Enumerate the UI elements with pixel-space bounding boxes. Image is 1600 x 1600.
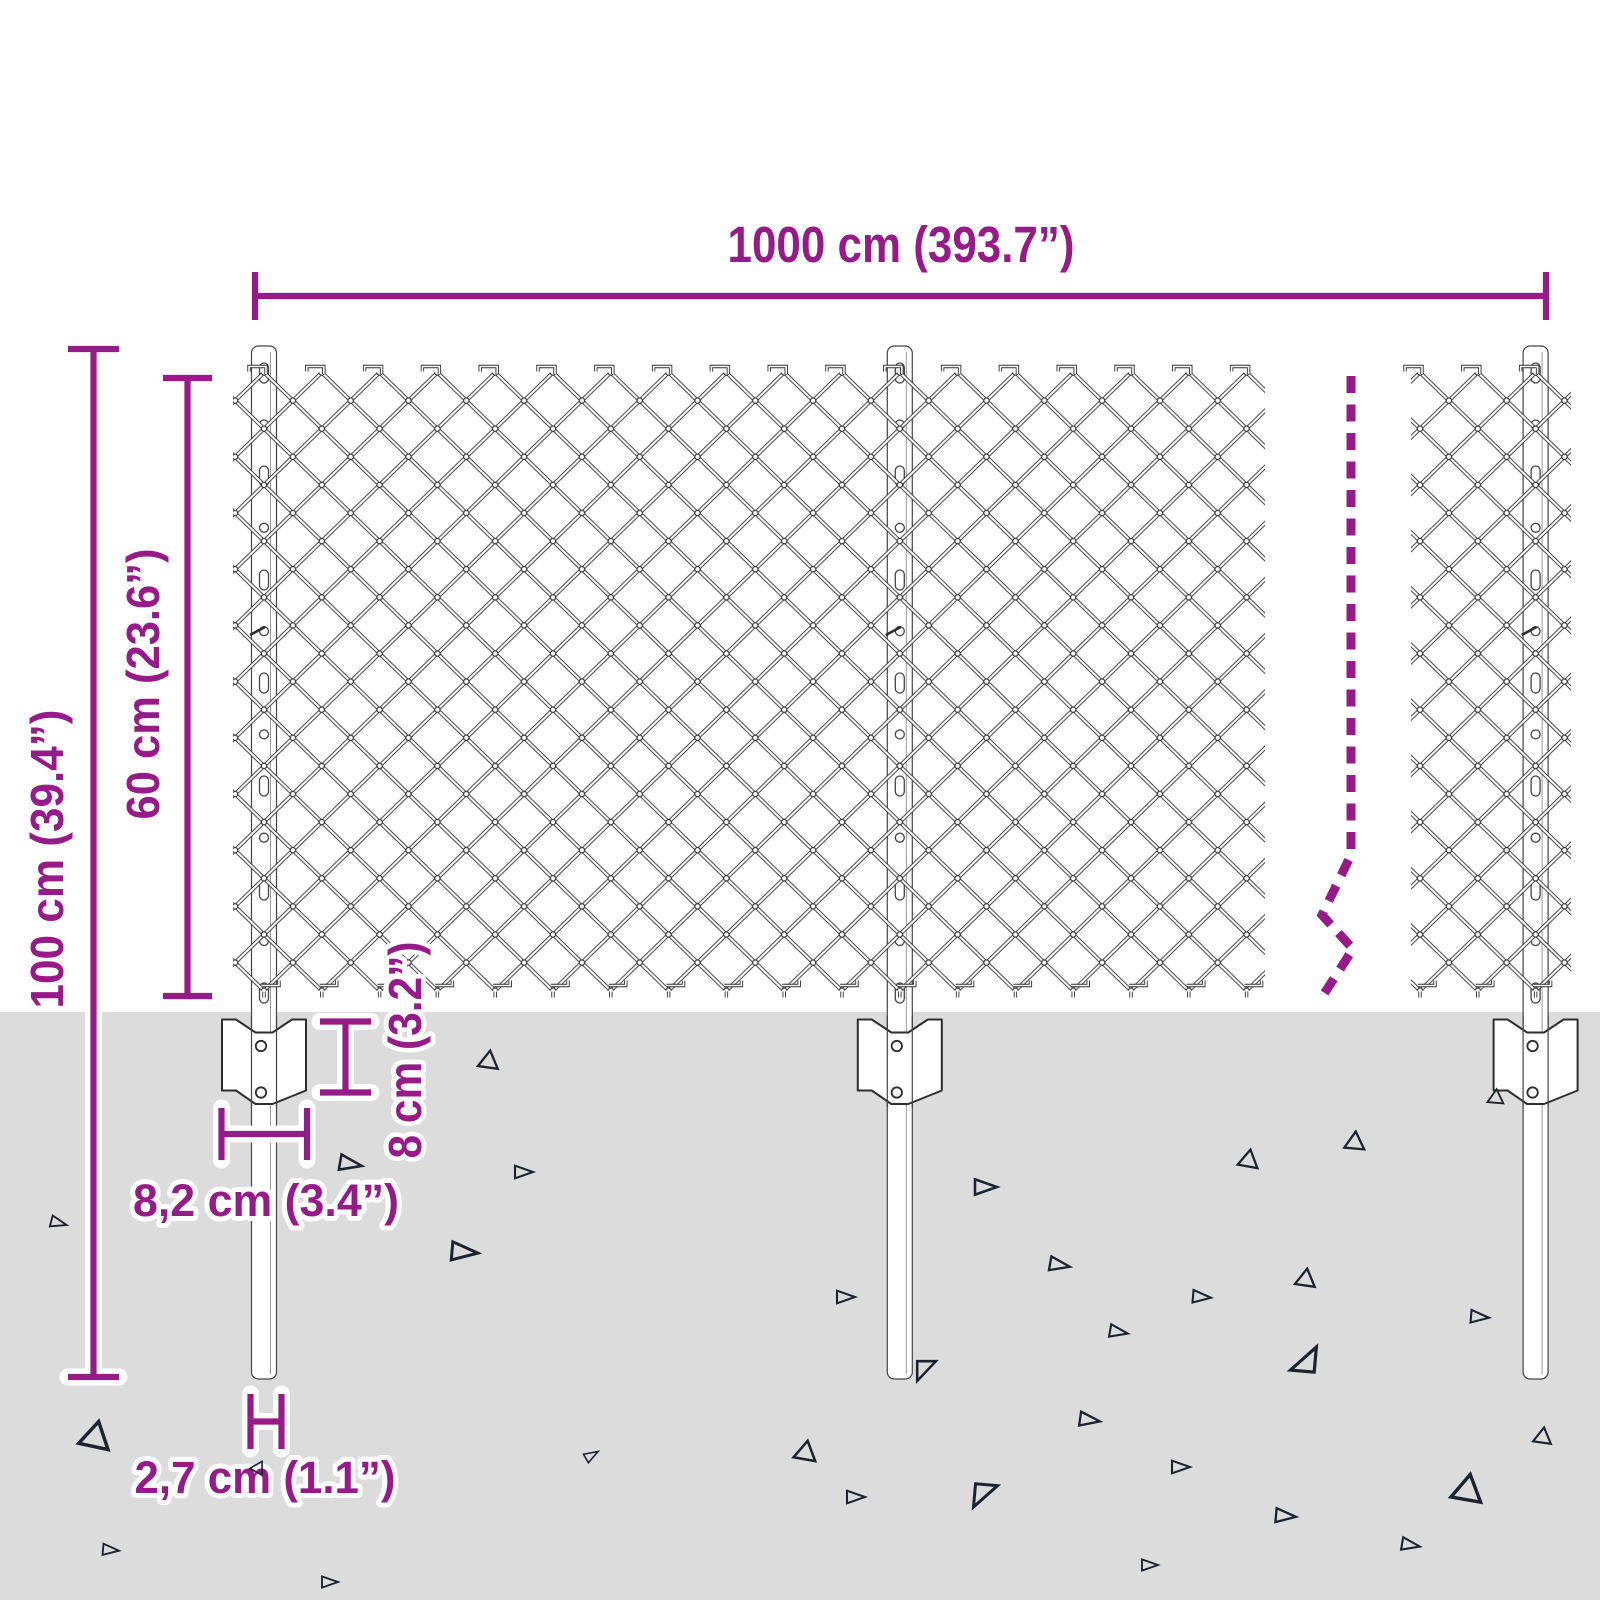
svg-text:8,2 cm (3.4”): 8,2 cm (3.4”)	[133, 1175, 399, 1226]
svg-text:100 cm (39.4”): 100 cm (39.4”)	[21, 710, 73, 1009]
svg-text:8 cm (3.2”): 8 cm (3.2”)	[379, 942, 431, 1159]
svg-text:1000 cm (393.7”): 1000 cm (393.7”)	[728, 216, 1075, 273]
svg-text:60 cm (23.6”): 60 cm (23.6”)	[117, 549, 169, 820]
svg-text:2,7 cm (1.1”): 2,7 cm (1.1”)	[135, 1452, 396, 1503]
